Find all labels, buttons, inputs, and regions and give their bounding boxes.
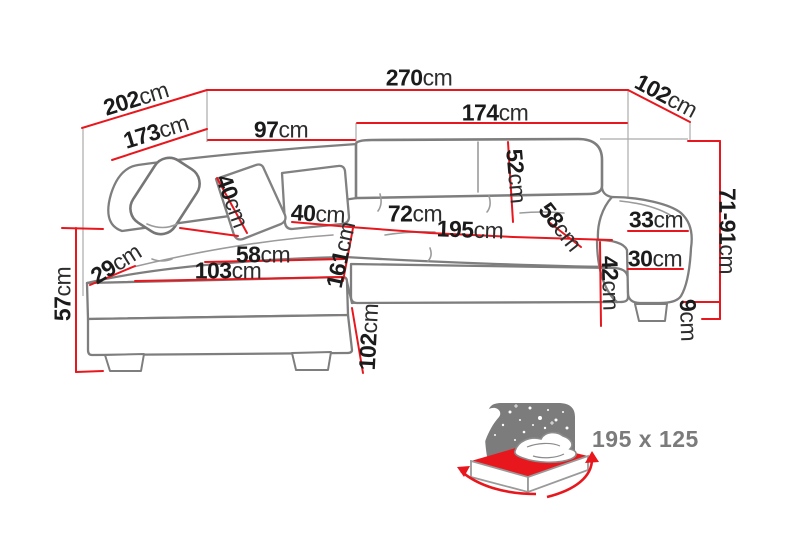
furniture-dimension-diagram: 270cm202cm102cm173cm97cm174cm52cm40cm40c… [0,0,800,533]
sleeping-function-bed-icon [457,403,599,497]
corner-sofa-dimension-drawing [0,0,800,533]
bed-size-label: 195 x 125 [592,428,699,451]
